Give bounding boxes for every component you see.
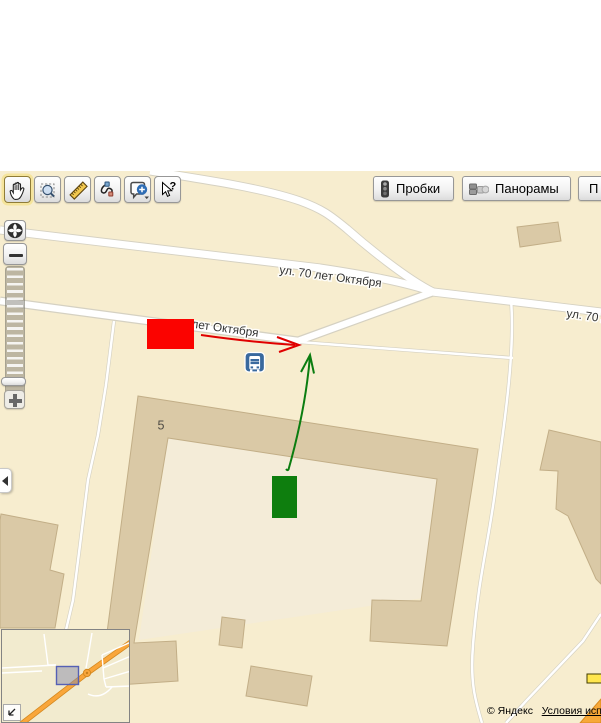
svg-text:?: ? xyxy=(170,181,177,193)
svg-text:5: 5 xyxy=(158,419,165,433)
